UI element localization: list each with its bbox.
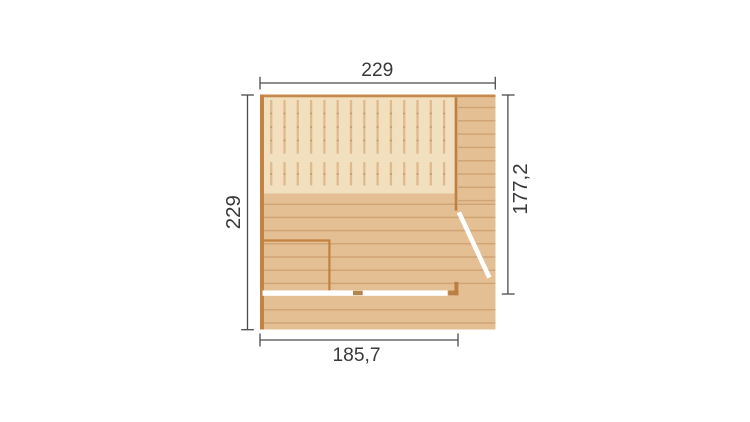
svg-text:185,7: 185,7 xyxy=(332,345,380,366)
svg-text:177,2: 177,2 xyxy=(509,163,532,214)
svg-text:229: 229 xyxy=(361,60,393,81)
svg-text:229: 229 xyxy=(222,195,245,229)
